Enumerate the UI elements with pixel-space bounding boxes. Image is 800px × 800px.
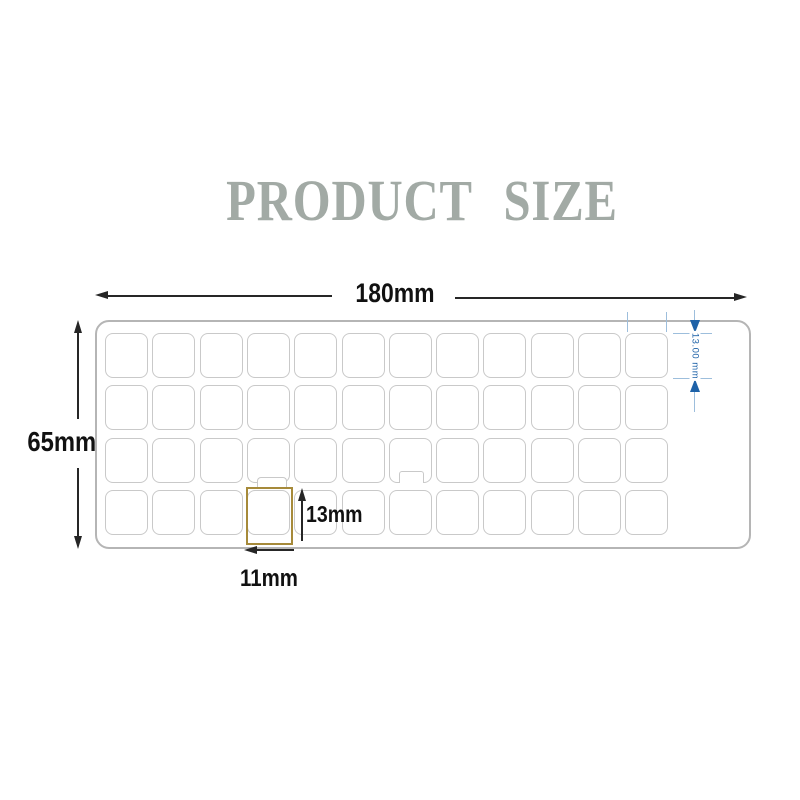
blue-dim-label: 13.00 mm: [690, 331, 701, 381]
height-dim-label: 65mm: [27, 428, 88, 456]
sticker-cell: [105, 385, 148, 430]
cell-width-dim-arrow-icon: [244, 546, 257, 554]
cell-height-dim-arrow-icon: [298, 488, 306, 501]
sticker-cell: [483, 438, 526, 483]
height-dim-line-top: [77, 331, 79, 419]
width-dim-label: 180mm: [340, 280, 451, 307]
sticker-cell: [578, 385, 621, 430]
sticker-cell: [578, 333, 621, 378]
page-title: PRODUCT SIZE: [226, 172, 618, 230]
cell-width-dim-line: [252, 549, 294, 551]
sticker-cell: [483, 333, 526, 378]
sticker-cell: [105, 438, 148, 483]
sticker-cell: [531, 438, 574, 483]
sticker-cell: [247, 385, 290, 430]
width-dim-line-right: [455, 297, 736, 299]
sticker-cell: [105, 490, 148, 535]
sticker-cell: [152, 333, 195, 378]
height-dim-arrow-down-icon: [74, 536, 82, 549]
sticker-cell: [342, 438, 385, 483]
sticker-cell: [389, 385, 432, 430]
sticker-cell: [436, 490, 479, 535]
sticker-cell: [342, 333, 385, 378]
sticker-cell: [342, 385, 385, 430]
blue-ext-line-2: [666, 312, 667, 332]
width-dim-line-left: [104, 295, 332, 297]
blue-ext-line-1: [627, 312, 628, 332]
sticker-cell: [200, 438, 243, 483]
sticker-cell: [483, 385, 526, 430]
sticker-cell: [200, 333, 243, 378]
sticker-cell: [294, 333, 337, 378]
sticker-cell: [578, 490, 621, 535]
sticker-cell: [625, 385, 668, 430]
product-size-figure: PRODUCT SIZE 180mm 65mm 13mm 11mm 13.00 …: [0, 0, 800, 800]
sticker-cell: [625, 333, 668, 378]
sticker-cell: [436, 333, 479, 378]
sticker-cell: [152, 385, 195, 430]
sticker-cell: [531, 490, 574, 535]
width-dim-arrow-right-icon: [734, 293, 747, 301]
sticker-cell: [294, 385, 337, 430]
sticker-cell: [247, 438, 290, 483]
cell-width-dim-label: 11mm: [240, 567, 298, 591]
sticker-cell: [625, 438, 668, 483]
sticker-cell: [389, 490, 432, 535]
sticker-cell: [436, 385, 479, 430]
cell-height-dim-label: 13mm: [306, 503, 363, 526]
sticker-cell: [531, 385, 574, 430]
sticker-sheet: [95, 320, 751, 549]
cell-notch: [399, 471, 424, 483]
sticker-cell: [152, 490, 195, 535]
sticker-cell: [436, 438, 479, 483]
height-dim-arrow-up-icon: [74, 320, 82, 333]
sticker-cell: [152, 438, 195, 483]
sticker-cell: [200, 385, 243, 430]
sticker-cell: [200, 490, 243, 535]
sticker-cell: [483, 490, 526, 535]
sticker-cell: [625, 490, 668, 535]
sticker-cell: [294, 438, 337, 483]
sticker-cell: [389, 333, 432, 378]
sticker-cell: [247, 333, 290, 378]
highlighted-cell-outline: [246, 487, 293, 545]
sticker-cell: [105, 333, 148, 378]
height-dim-line-bottom: [77, 468, 79, 538]
sticker-cell: [531, 333, 574, 378]
sticker-cell: [578, 438, 621, 483]
width-dim-arrow-left-icon: [95, 291, 108, 299]
